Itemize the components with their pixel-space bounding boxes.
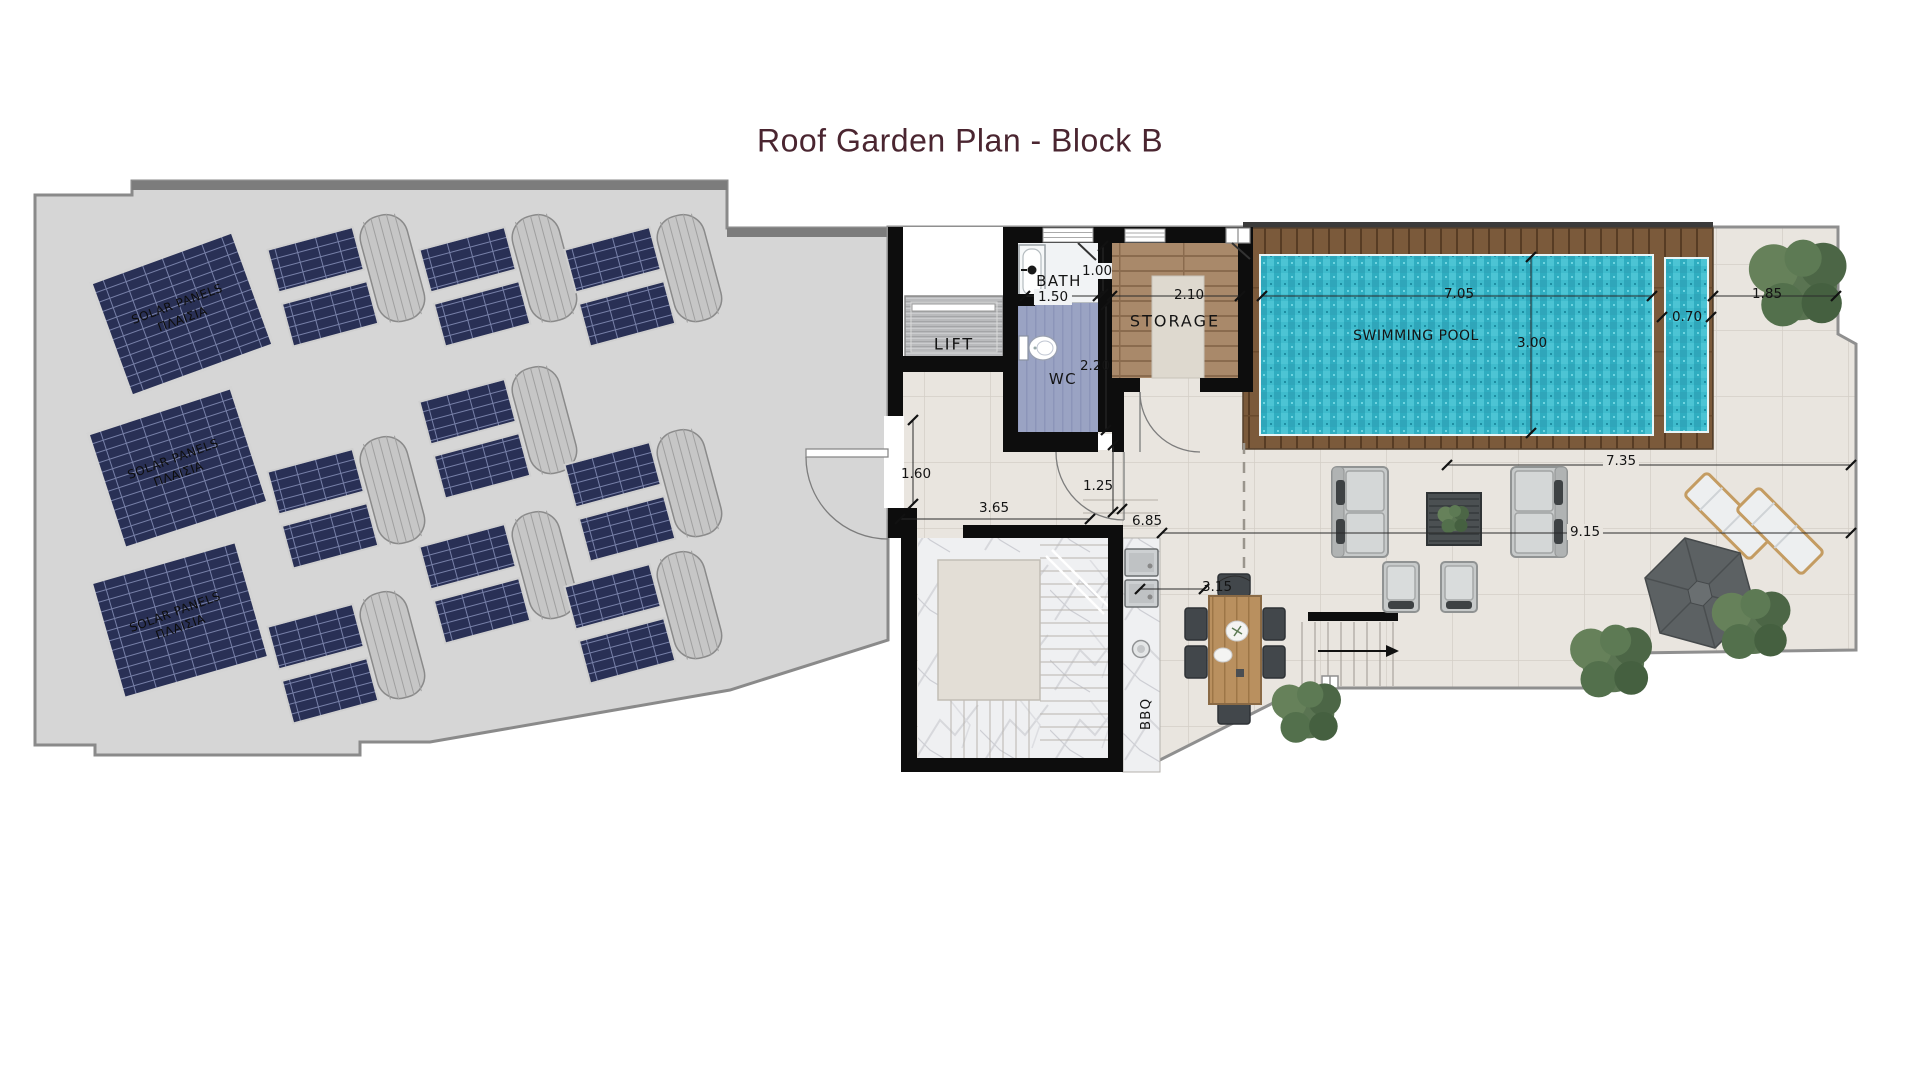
dimension-bath-width: 1.00 (1082, 263, 1112, 279)
bath-label: BATH (1036, 272, 1082, 290)
dimension-terrace-a: 6.85 (1132, 513, 1162, 529)
window (1043, 228, 1093, 242)
swimming-pool-label: SWIMMING POOL (1353, 328, 1479, 344)
door-threshold (884, 416, 904, 508)
dimension-bath-length: 1.50 (1034, 289, 1072, 305)
dimension-pool-width: 3.00 (1517, 335, 1547, 351)
bbq-label: BBQ (1138, 698, 1154, 730)
coffee-table (1427, 493, 1481, 545)
plate (1214, 648, 1232, 662)
dimension-pool-length: 7.05 (1444, 286, 1474, 302)
plant (1749, 240, 1847, 327)
dimension-storage-width: 2.10 (1170, 287, 1208, 303)
roof-parapet-strip (132, 181, 727, 190)
plant (1570, 625, 1652, 698)
lift-door (912, 304, 995, 311)
dimension-pool-strip: 0.70 (1672, 309, 1702, 325)
swimming-pool (1260, 255, 1708, 435)
dimension-side-terrace: 1.85 (1752, 286, 1782, 302)
lift-label: LIFT (934, 335, 974, 354)
floor-plan-drawing (0, 0, 1920, 1080)
stairwell (918, 538, 1160, 772)
window (1125, 229, 1165, 242)
armchair (1383, 562, 1419, 612)
door-leaf (806, 449, 888, 457)
dimension-hall-door: 1.25 (1083, 478, 1113, 494)
storage-room (1112, 243, 1238, 378)
plant (1712, 589, 1791, 659)
armchair (1441, 562, 1477, 612)
roof-parapet-strip (727, 228, 888, 237)
wc-label: WC (1049, 370, 1077, 388)
table-plant (1438, 505, 1470, 533)
dimension-wc-length: 2.20 (1080, 358, 1110, 374)
dimension-terrace-b: 7.35 (1603, 453, 1639, 469)
floor-plan-canvas: Roof Garden Plan - Block B LIFT BATH WC … (0, 0, 1920, 1080)
plan-title: Roof Garden Plan - Block B (757, 123, 1163, 160)
storage-label: STORAGE (1130, 312, 1220, 331)
pool-narrow-strip (1665, 258, 1708, 432)
dimension-dining-width: 3.15 (1202, 579, 1232, 595)
toilet (1019, 336, 1057, 360)
sofa (1511, 467, 1567, 557)
dimension-roof-door: 1.60 (901, 466, 931, 482)
dimension-terrace-c: 9.15 (1567, 524, 1603, 540)
plant (1272, 681, 1341, 743)
sofa (1332, 467, 1388, 557)
stair-landing (938, 560, 1040, 700)
table-item (1236, 669, 1244, 677)
dimension-hall-width: 3.65 (979, 500, 1009, 516)
